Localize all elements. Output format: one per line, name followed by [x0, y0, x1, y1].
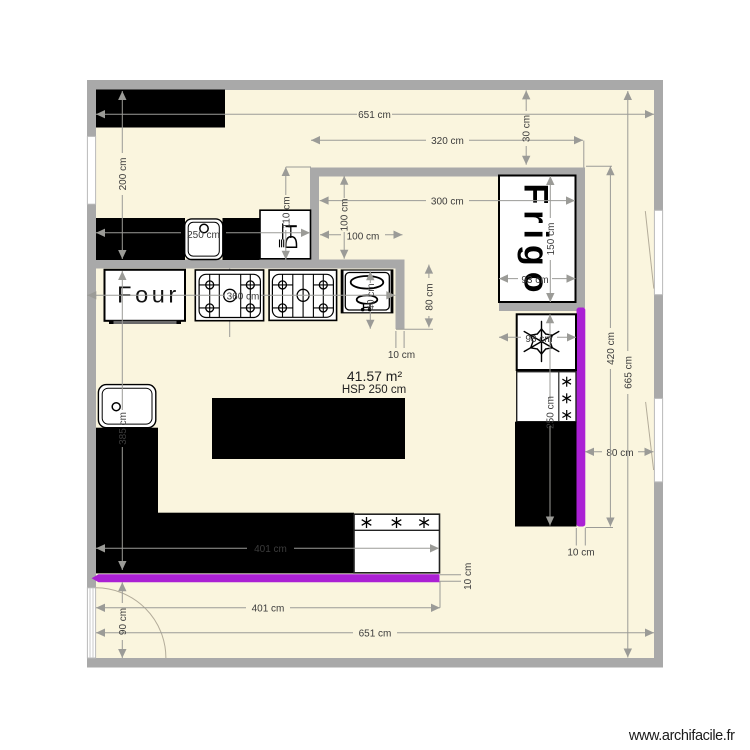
svg-text:150 cm: 150 cm [546, 223, 557, 256]
svg-text:10 cm: 10 cm [388, 350, 415, 361]
svg-text:665 cm: 665 cm [623, 356, 634, 389]
svg-text:300 cm: 300 cm [431, 197, 464, 208]
svg-text:250 cm: 250 cm [546, 396, 557, 429]
svg-text:100 cm: 100 cm [347, 232, 380, 243]
svg-text:250 cm: 250 cm [187, 230, 220, 241]
svg-text:110 cm: 110 cm [281, 196, 292, 228]
svg-text:200 cm: 200 cm [118, 158, 129, 191]
svg-text:385 cm: 385 cm [118, 412, 129, 445]
svg-text:320 cm: 320 cm [431, 136, 464, 147]
svg-text:93 cm: 93 cm [525, 334, 552, 345]
svg-text:HSP 250 cm: HSP 250 cm [342, 384, 406, 396]
svg-text:41.57 m²: 41.57 m² [347, 368, 403, 384]
svg-text:40 cm: 40 cm [366, 283, 377, 310]
svg-text:100 cm: 100 cm [340, 199, 351, 232]
svg-text:Four: Four [117, 282, 180, 308]
svg-text:93 cm: 93 cm [521, 275, 548, 286]
svg-text:651 cm: 651 cm [358, 110, 391, 121]
svg-text:90 cm: 90 cm [118, 608, 129, 635]
svg-text:420 cm: 420 cm [606, 332, 617, 365]
svg-text:401 cm: 401 cm [254, 544, 287, 555]
svg-text:360 cm: 360 cm [227, 292, 260, 303]
svg-text:401 cm: 401 cm [252, 604, 285, 615]
svg-text:www.archifacile.fr: www.archifacile.fr [628, 728, 735, 744]
svg-text:30 cm: 30 cm [522, 115, 533, 142]
svg-text:80 cm: 80 cm [424, 283, 435, 310]
svg-text:10 cm: 10 cm [463, 563, 474, 590]
svg-text:10 cm: 10 cm [567, 548, 594, 559]
svg-text:651 cm: 651 cm [359, 629, 392, 640]
